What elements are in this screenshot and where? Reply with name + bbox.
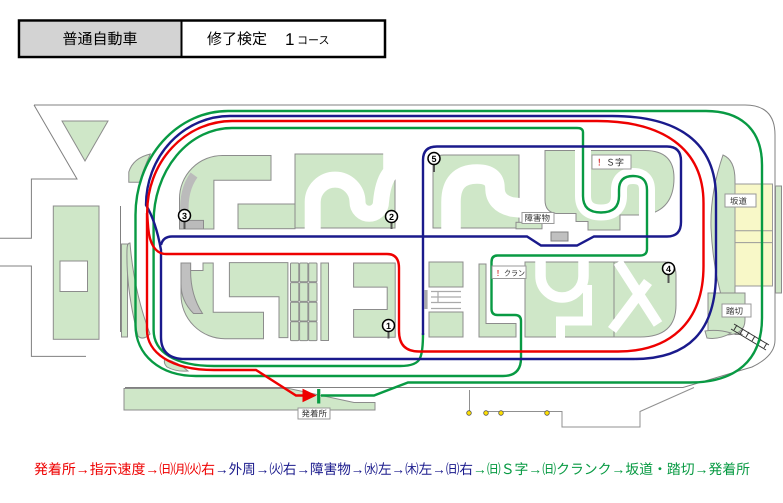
svg-text:→㈰Ｓ字→㈰クランク→坂道・踏切→発着所: →㈰Ｓ字→㈰クランク→坂道・踏切→発着所: [473, 461, 750, 477]
svg-text:1: 1: [386, 321, 391, 331]
svg-text:4: 4: [666, 264, 671, 274]
svg-text:→外周→㈫右→障害物→㈬左→㈭左→㈰右: →外周→㈫右→障害物→㈬左→㈭左→㈰右: [215, 461, 473, 477]
svg-text:発着所→指示速度→㈰㈪㈫右: 発着所→指示速度→㈰㈪㈫右: [34, 461, 215, 477]
svg-text:コース: コース: [297, 35, 329, 47]
svg-text:発着所: 発着所: [302, 409, 328, 419]
svg-text:！: ！: [496, 269, 504, 278]
svg-text:2: 2: [389, 212, 394, 222]
svg-text:踏切: 踏切: [726, 306, 743, 316]
svg-text:坂道: 坂道: [730, 196, 748, 206]
svg-text:クラン: クラン: [504, 269, 525, 278]
svg-text:Ｓ字: Ｓ字: [606, 158, 624, 168]
svg-text:1: 1: [285, 30, 294, 49]
svg-text:普通自動車: 普通自動車: [62, 31, 137, 48]
svg-text:修了検定: 修了検定: [207, 31, 267, 48]
svg-text:障害物: 障害物: [525, 213, 551, 223]
svg-text:3: 3: [182, 211, 187, 221]
svg-text:5: 5: [431, 154, 436, 164]
svg-text:！: ！: [597, 158, 606, 168]
